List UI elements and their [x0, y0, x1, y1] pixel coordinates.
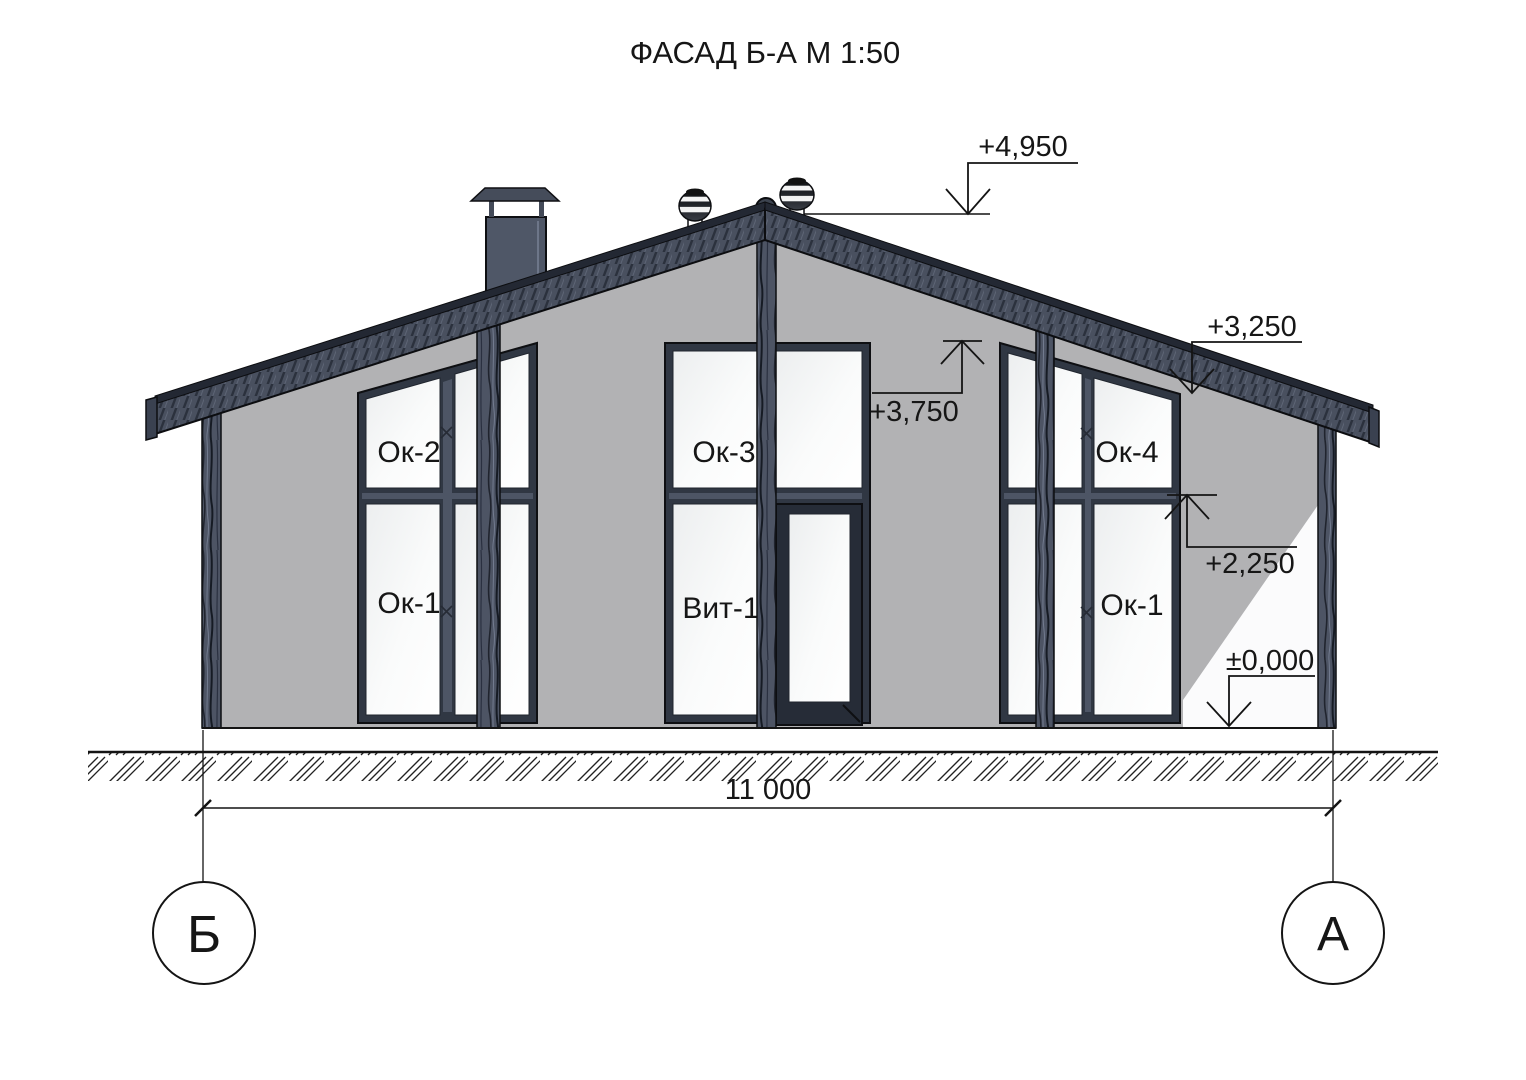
vent-right-top — [788, 178, 806, 185]
dimension-value: 11 000 — [725, 774, 812, 806]
post-mid-right — [1036, 328, 1054, 728]
label-ok4: Ок-4 — [1095, 436, 1158, 469]
facade-drawing-sheet: ФАСАД Б-А М 1:50 — [0, 0, 1526, 1080]
label-ok2: Ок-2 — [377, 436, 440, 469]
elevation-value-window-head: +3,750 — [869, 396, 959, 428]
elevation-value-transom: +2,250 — [1205, 548, 1295, 580]
window-left-group — [358, 343, 537, 723]
window-right-group — [1000, 343, 1180, 723]
window-right-mullion-bevel — [1085, 378, 1091, 712]
window-center-pane-tr — [776, 351, 862, 488]
vent-left-top — [686, 189, 704, 196]
drawing-title: ФАСАД Б-А М 1:50 — [630, 35, 901, 70]
roof-endcap-right — [1369, 407, 1379, 447]
axis-letter-b: Б — [187, 906, 221, 964]
post-corner-left — [202, 412, 221, 728]
label-ok1-right: Ок-1 — [1100, 589, 1163, 622]
label-ok1-left: Ок-1 — [377, 587, 440, 620]
elevation-value-ridge: +4,950 — [978, 131, 1068, 163]
chimney-cap-support-left — [489, 201, 494, 217]
elevation-value-eaves: +3,250 — [1207, 311, 1297, 343]
elevation-leader-ridge — [968, 163, 1078, 214]
post-ridge — [757, 228, 776, 728]
facade-elevation-svg: ФАСАД Б-А М 1:50 — [0, 0, 1526, 1080]
post-corner-right — [1318, 424, 1336, 728]
label-ok3: Ок-3 — [692, 436, 755, 469]
roof-endcap-left — [146, 397, 157, 440]
door-vit1 — [776, 504, 862, 725]
door-glass — [789, 514, 850, 702]
post-mid-left — [477, 318, 500, 728]
elevation-value-zero: ±0,000 — [1226, 645, 1315, 677]
chimney-cap-support-right — [539, 201, 544, 217]
elevation-mark-ridge — [946, 163, 1078, 214]
label-vit1: Вит-1 — [682, 592, 759, 625]
chimney-cap — [471, 188, 559, 201]
axis-letter-a: А — [1317, 908, 1349, 961]
axis-markers: Б А — [153, 882, 1384, 984]
